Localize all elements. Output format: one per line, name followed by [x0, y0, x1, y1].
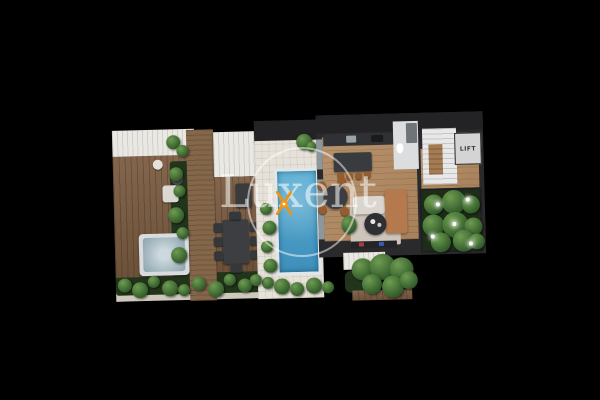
lift-room: LIFT	[454, 132, 482, 165]
garden-light	[436, 202, 440, 206]
courtyard-garden	[419, 187, 483, 253]
rendered-floorplan-image: { "watermark": { "brand_text": "Luxent",…	[0, 0, 600, 400]
staircase-wood-steps	[428, 144, 443, 174]
kitchen-stove	[371, 135, 383, 142]
console-decor-blue	[379, 242, 384, 246]
outdoor-dining-table	[222, 219, 249, 264]
shower	[406, 123, 418, 143]
garden-light	[452, 222, 456, 226]
toilet	[396, 143, 403, 153]
watermark-brand-text: Luxent	[200, 169, 396, 214]
tv-console	[351, 240, 397, 248]
lift-label: LIFT	[460, 145, 476, 152]
console-decor-red	[359, 242, 364, 246]
kitchen-sink	[346, 136, 356, 143]
garden-light	[466, 198, 470, 202]
luxent-x-monogram-icon	[276, 191, 292, 215]
table-decor	[370, 219, 375, 224]
garden-light	[469, 241, 473, 245]
